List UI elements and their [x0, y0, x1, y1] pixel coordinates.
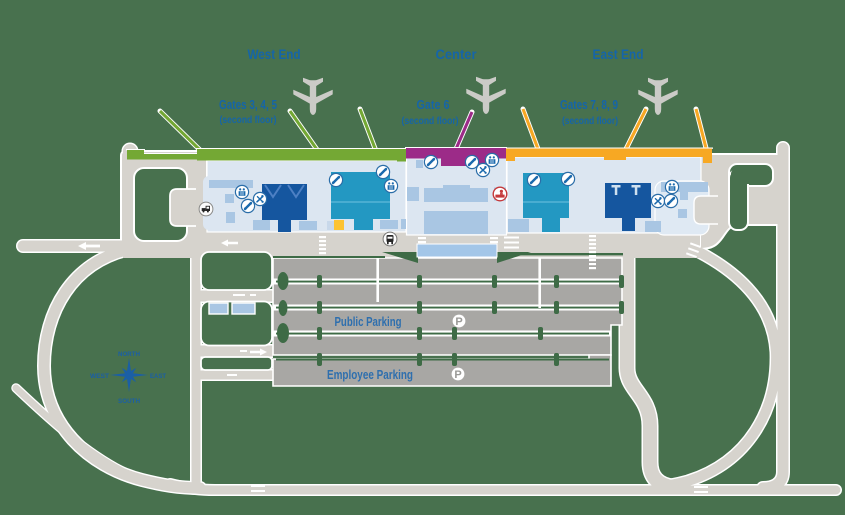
svg-text:East End: East End — [593, 46, 644, 62]
svg-text:(second floor): (second floor) — [562, 115, 618, 127]
svg-text:(second floor): (second floor) — [220, 114, 277, 126]
svg-text:Gate 6: Gate 6 — [417, 98, 450, 112]
svg-text:SOUTH: SOUTH — [118, 398, 140, 405]
svg-text:Center: Center — [436, 46, 477, 62]
svg-text:Gates 7, 8, 9: Gates 7, 8, 9 — [560, 98, 618, 112]
svg-text:Public Parking: Public Parking — [335, 314, 402, 329]
svg-text:NORTH: NORTH — [118, 351, 140, 358]
svg-text:WEST: WEST — [90, 373, 109, 380]
svg-text:(second floor): (second floor) — [402, 115, 459, 127]
svg-text:Gates 3, 4, 5: Gates 3, 4, 5 — [219, 98, 277, 112]
svg-text:Employee Parking: Employee Parking — [327, 367, 413, 382]
svg-text:EAST: EAST — [150, 373, 166, 380]
svg-text:West End: West End — [248, 46, 301, 62]
